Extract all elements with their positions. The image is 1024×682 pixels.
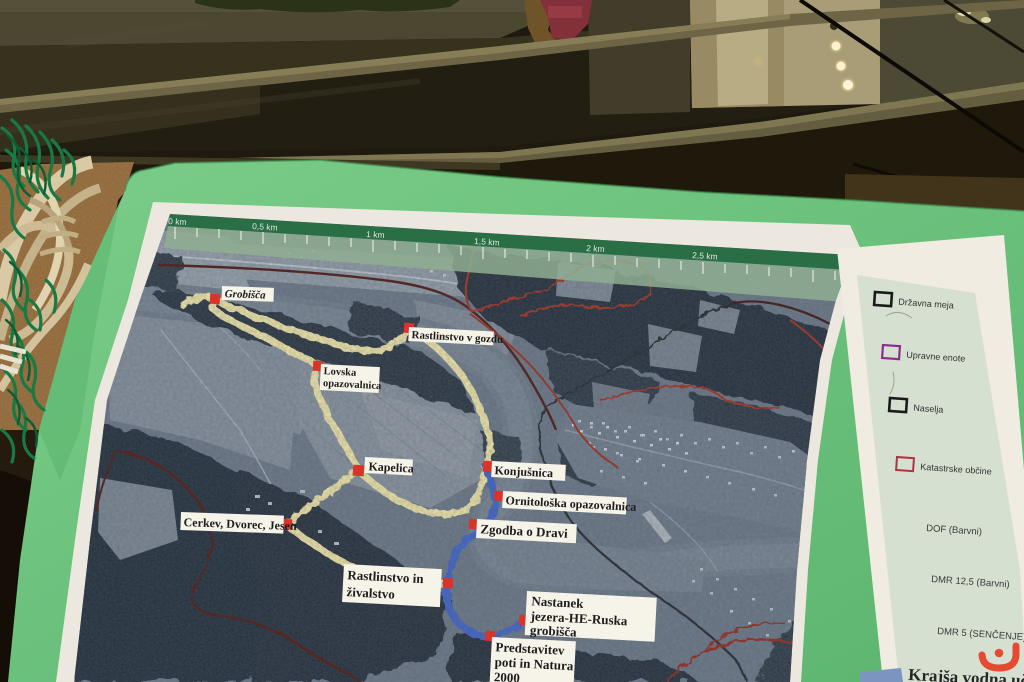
svg-text:2,5 km: 2,5 km: [692, 250, 718, 261]
svg-text:grobišča: grobišča: [530, 622, 578, 639]
svg-text:Grobišča: Grobišča: [225, 288, 267, 301]
svg-text:1,5 km: 1,5 km: [474, 236, 500, 247]
svg-text:1 km: 1 km: [366, 229, 385, 240]
svg-text:Kapelica: Kapelica: [368, 459, 414, 475]
svg-text:živalstvo: živalstvo: [346, 584, 395, 602]
svg-text:2 km: 2 km: [586, 243, 605, 254]
svg-text:Lovska: Lovska: [323, 366, 357, 379]
svg-text:2000: 2000: [494, 669, 521, 682]
svg-text:Naselja: Naselja: [913, 403, 944, 415]
svg-text:0,5 km: 0,5 km: [252, 221, 278, 232]
svg-text:0 km: 0 km: [168, 216, 187, 227]
